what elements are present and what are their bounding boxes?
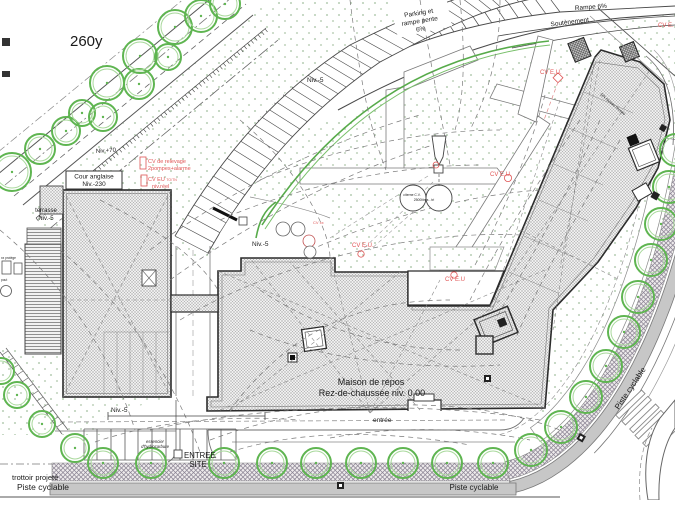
svg-text:Niv.-5: Niv.-5 <box>111 407 128 414</box>
svg-text:xx protège: xx protège <box>1 256 16 260</box>
svg-text:Rez-de-chaussée niv. 0.00: Rez-de-chaussée niv. 0.00 <box>319 388 425 398</box>
svg-text:Piste cyclable: Piste cyclable <box>450 483 499 492</box>
svg-text:Maison de repos: Maison de repos <box>338 377 405 387</box>
svg-text:niv.réel: niv.réel <box>152 184 169 190</box>
svg-text:SITE: SITE <box>189 460 206 469</box>
svg-text:citerne C.V.: citerne C.V. <box>403 193 421 197</box>
svg-text:entrée: entrée <box>373 417 392 424</box>
svg-text:2500litres - tri: 2500litres - tri <box>414 198 435 202</box>
svg-text:ENTREE: ENTREE <box>184 451 216 460</box>
svg-text:pout: pout <box>1 278 7 282</box>
svg-text:CV E.: CV E. <box>658 23 674 29</box>
svg-text:260y: 260y <box>70 33 103 50</box>
svg-text:Niv.-5: Niv.-5 <box>252 241 269 248</box>
svg-text:CV de relevage: CV de relevage <box>148 159 186 165</box>
svg-text:CV E.U.: CV E.U. <box>352 243 374 249</box>
svg-text:Niv.-5: Niv.-5 <box>307 77 324 84</box>
svg-text:Cour anglaise: Cour anglaise <box>74 174 114 181</box>
svg-text:trottoir projeté: trottoir projeté <box>12 473 58 482</box>
svg-text:Niv.-5: Niv.-5 <box>38 216 54 222</box>
svg-text:6%: 6% <box>416 25 427 33</box>
svg-text:2pompes+alarme: 2pompes+alarme <box>148 166 191 172</box>
svg-text:CV E.U.: CV E.U. <box>490 172 512 178</box>
svg-text:Niv.-230: Niv.-230 <box>82 181 106 188</box>
svg-text:d'hydrocarbure: d'hydrocarbure <box>141 444 169 449</box>
svg-text:terrasse: terrasse <box>35 208 57 214</box>
svg-text:CV xx: CV xx <box>313 220 324 225</box>
svg-text:Piste cyclable: Piste cyclable <box>17 482 69 492</box>
